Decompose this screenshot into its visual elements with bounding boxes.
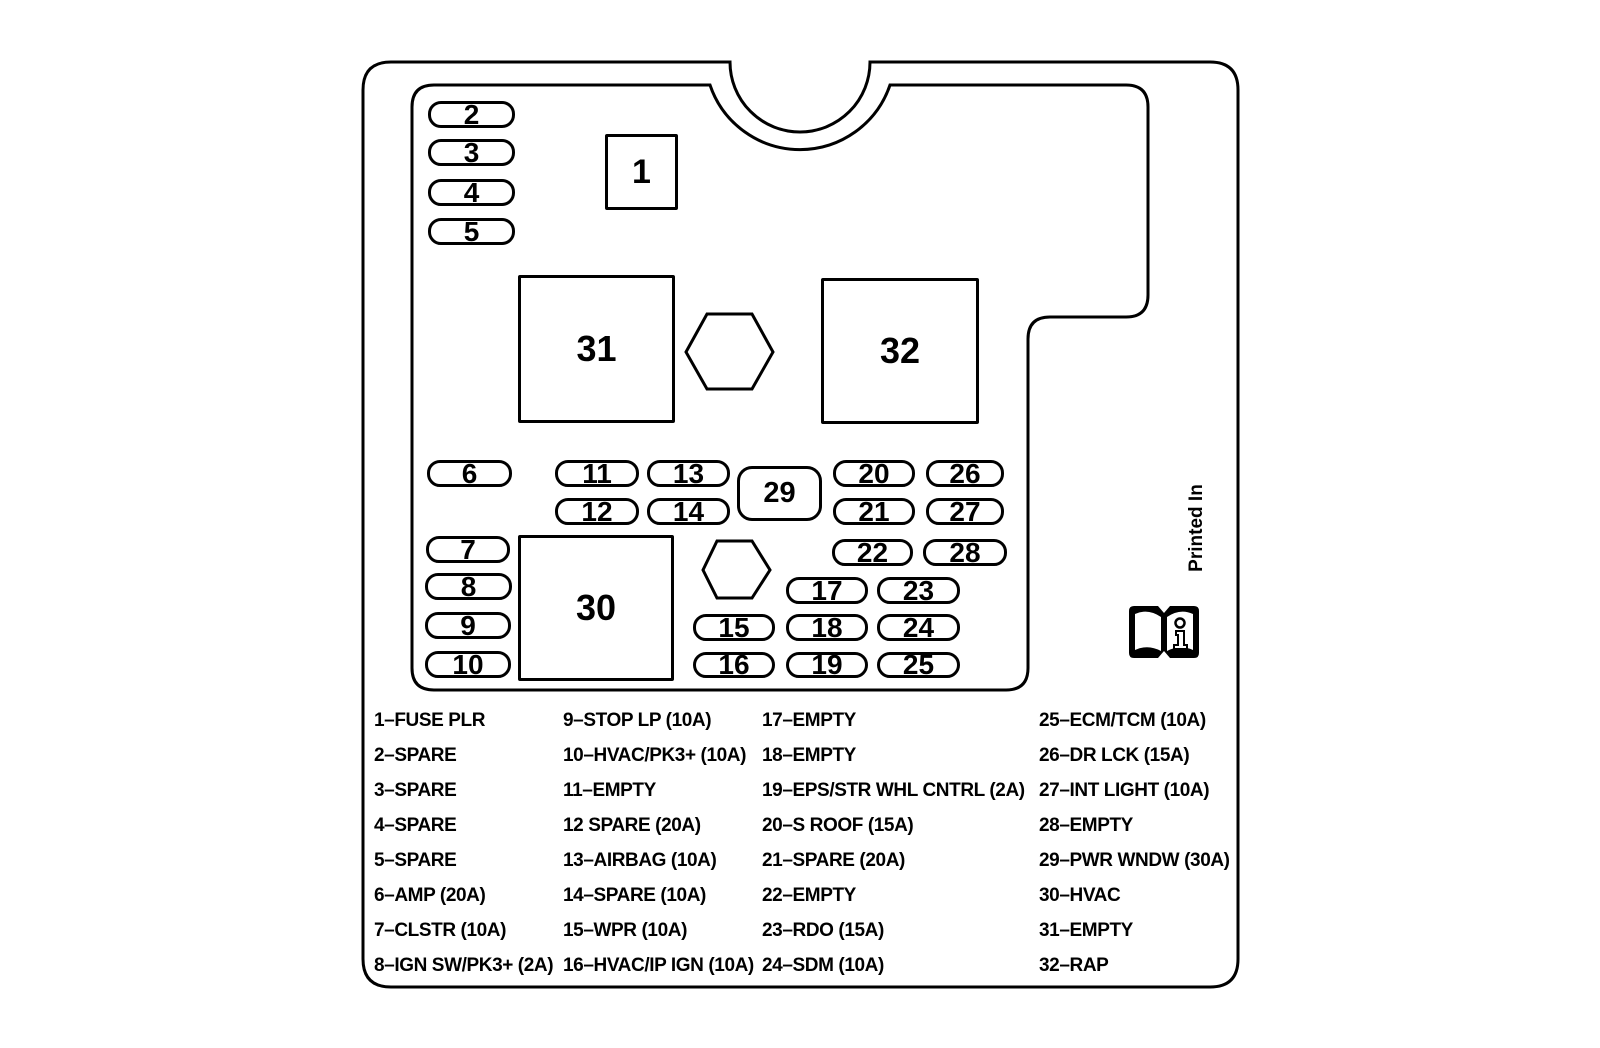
module-30: 30 [518,535,674,681]
fuse-25: 25 [877,652,960,678]
fuse-26: 26 [926,460,1004,487]
fuse-19: 19 [786,652,868,678]
fuse-box-diagram: 2345678910111213141516171819202122232425… [0,0,1600,1048]
legend-item-col3-row3: 19–EPS/STR WHL CNTRL (2A) [762,780,1025,802]
fuse-20: 20 [833,460,915,487]
fuse-22: 22 [832,539,913,566]
legend-item-col3-row7: 23–RDO (15A) [762,920,884,942]
legend-item-col1-row2: 2–SPARE [374,745,456,767]
module-1: 1 [605,134,678,210]
bolt-hexagon-lower [703,541,770,598]
legend-item-col4-row3: 27–INT LIGHT (10A) [1039,780,1209,802]
fuse-10: 10 [425,651,511,678]
printed-in-label: Printed In [1186,484,1208,572]
legend-item-col2-row4: 12 SPARE (20A) [563,815,701,837]
legend-item-col1-row6: 6–AMP (20A) [374,885,485,907]
fuse-17: 17 [786,577,868,604]
module-32: 32 [821,278,979,424]
owner-manual-book-icon [1129,606,1199,658]
legend-item-col3-row4: 20–S ROOF (15A) [762,815,913,837]
fuse-4: 4 [428,179,515,206]
fuse-23: 23 [877,577,960,604]
fuse-18: 18 [786,614,868,641]
legend-item-col2-row6: 14–SPARE (10A) [563,885,706,907]
legend-item-col4-row8: 32–RAP [1039,955,1108,977]
fuse-7: 7 [426,536,510,563]
legend-item-col1-row8: 8–IGN SW/PK3+ (2A) [374,955,553,977]
legend-item-col2-row5: 13–AIRBAG (10A) [563,850,716,872]
relay-29: 29 [737,466,822,521]
legend-item-col1-row7: 7–CLSTR (10A) [374,920,506,942]
legend-item-col3-row1: 17–EMPTY [762,710,856,732]
fuse-12: 12 [555,498,639,525]
fuse-2: 2 [428,101,515,128]
fuse-24: 24 [877,614,960,641]
fuse-15: 15 [693,614,775,641]
legend-item-col1-row5: 5–SPARE [374,850,456,872]
fuse-3: 3 [428,139,515,166]
legend-item-col2-row1: 9–STOP LP (10A) [563,710,711,732]
legend-item-col1-row1: 1–FUSE PLR [374,710,485,732]
legend-item-col3-row5: 21–SPARE (20A) [762,850,905,872]
legend-item-col4-row2: 26–DR LCK (15A) [1039,745,1189,767]
legend-item-col3-row6: 22–EMPTY [762,885,856,907]
legend-item-col4-row6: 30–HVAC [1039,885,1120,907]
fuse-11: 11 [555,460,639,487]
module-31: 31 [518,275,675,423]
fuse-9: 9 [425,612,511,639]
fuse-6: 6 [427,460,512,487]
fuse-16: 16 [693,652,775,678]
legend-item-col2-row7: 15–WPR (10A) [563,920,687,942]
legend-item-col4-row1: 25–ECM/TCM (10A) [1039,710,1206,732]
legend-item-col1-row4: 4–SPARE [374,815,456,837]
fuse-28: 28 [923,539,1007,566]
fuse-13: 13 [647,460,730,487]
fuse-5: 5 [428,218,515,245]
legend-item-col4-row4: 28–EMPTY [1039,815,1133,837]
legend-item-col2-row8: 16–HVAC/IP IGN (10A) [563,955,754,977]
bolt-hexagon-upper [686,314,773,389]
legend-item-col1-row3: 3–SPARE [374,780,456,802]
legend-item-col2-row2: 10–HVAC/PK3+ (10A) [563,745,746,767]
fuse-21: 21 [833,498,915,525]
legend-item-col2-row3: 11–EMPTY [563,780,656,802]
legend-item-col4-row5: 29–PWR WNDW (30A) [1039,850,1230,872]
fuse-8: 8 [425,573,512,600]
fuse-14: 14 [647,498,730,525]
legend-item-col3-row8: 24–SDM (10A) [762,955,884,977]
legend-item-col3-row2: 18–EMPTY [762,745,856,767]
legend-item-col4-row7: 31–EMPTY [1039,920,1133,942]
fuse-27: 27 [926,498,1004,525]
